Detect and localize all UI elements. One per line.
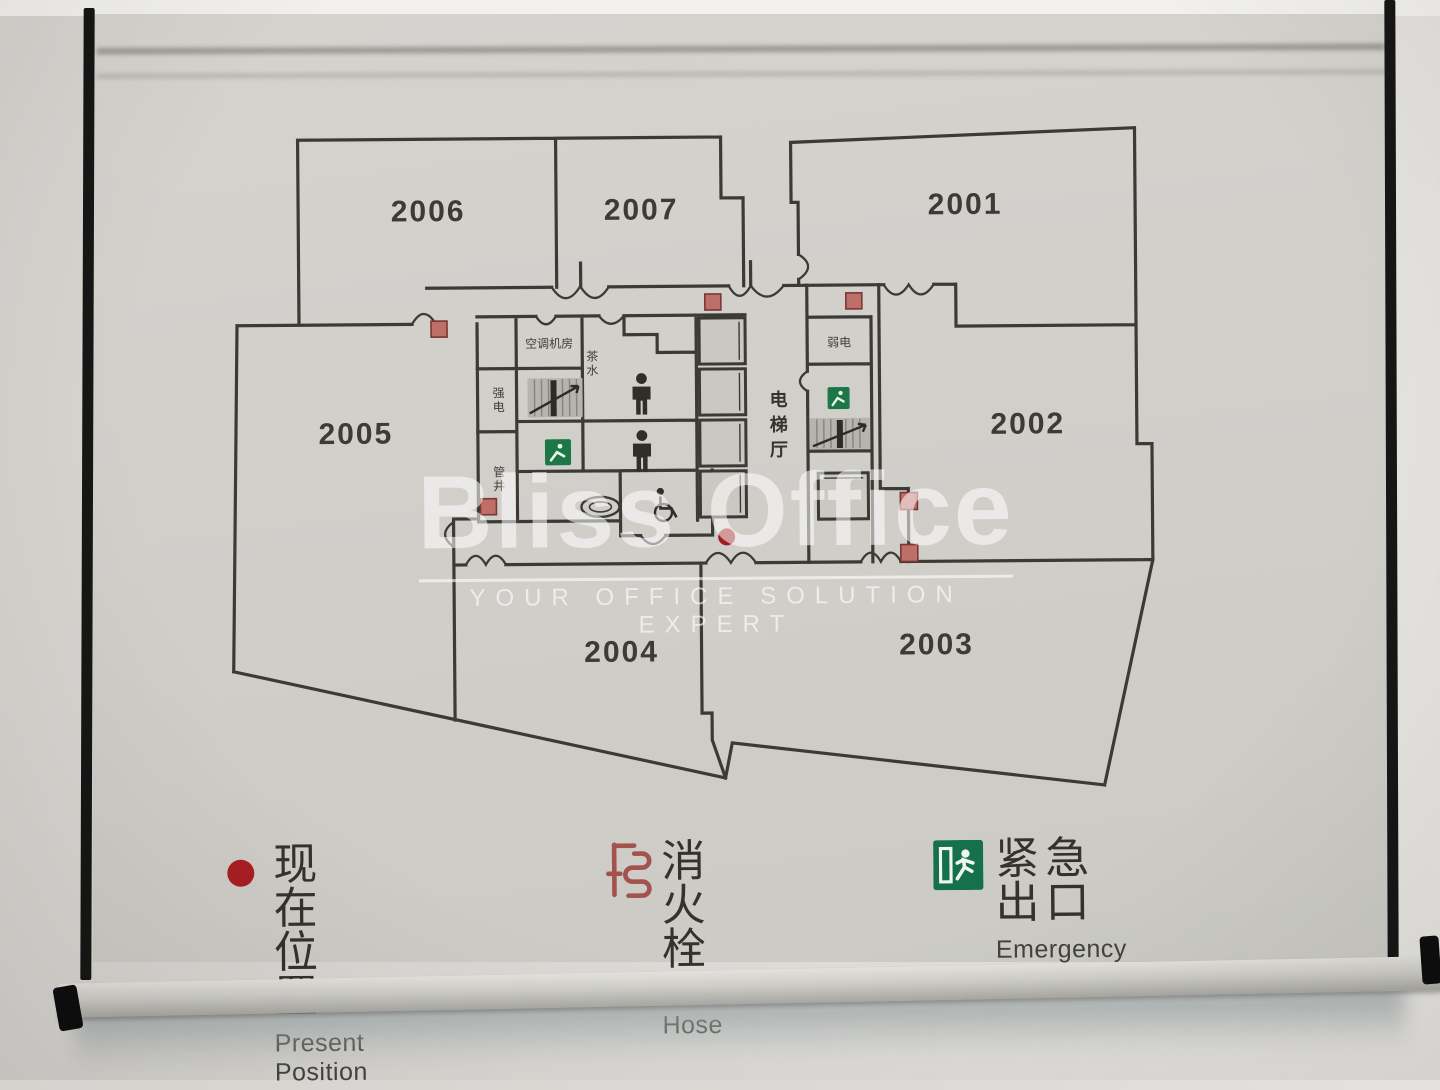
- legend-exit-zh: 紧急出口: [995, 837, 1127, 926]
- photo-of-floor-plan-sign: { "watermark": { "brand": "Bliss Office"…: [0, 0, 1440, 1080]
- room-label-2001: 2001: [928, 188, 1003, 223]
- male-toilet-icon: [632, 373, 650, 415]
- room-label-2004: 2004: [584, 635, 659, 670]
- fire-hose-marker: [431, 321, 447, 337]
- core-label-ac-room: 空调机房: [525, 335, 573, 352]
- emergency-exit-legend-icon: [933, 840, 983, 890]
- exit-sign-plan-right-icon: [828, 387, 850, 409]
- fire-hose-marker: [705, 294, 721, 310]
- core-label-strong-power: 强电: [490, 387, 507, 415]
- fire-hose-legend-icon: [605, 840, 655, 898]
- room-label-2007: 2007: [604, 193, 679, 228]
- core-label-weak-power: 弱电: [827, 333, 851, 350]
- fire-hose-marker: [846, 293, 862, 309]
- stairs-right-icon: [810, 418, 870, 449]
- legend-fire-zh: 消火栓: [661, 840, 722, 972]
- room-label-2002: 2002: [990, 407, 1065, 442]
- room-label-2005: 2005: [318, 418, 393, 453]
- stairs-left-icon: [527, 378, 582, 417]
- watermark-brand: Bliss Office: [400, 450, 1031, 574]
- core-label-pantry: 茶水: [584, 350, 601, 378]
- present-position-legend-icon: [227, 860, 254, 887]
- watermark-tagline: YOUR OFFICE SOLUTION EXPERT: [406, 581, 1026, 642]
- rail-end-cap-right: [1419, 935, 1440, 984]
- sign-content: 2006 2007 2001 2005 2002 2004 2003 空调机房 …: [0, 0, 1440, 1086]
- room-label-2006: 2006: [391, 195, 466, 230]
